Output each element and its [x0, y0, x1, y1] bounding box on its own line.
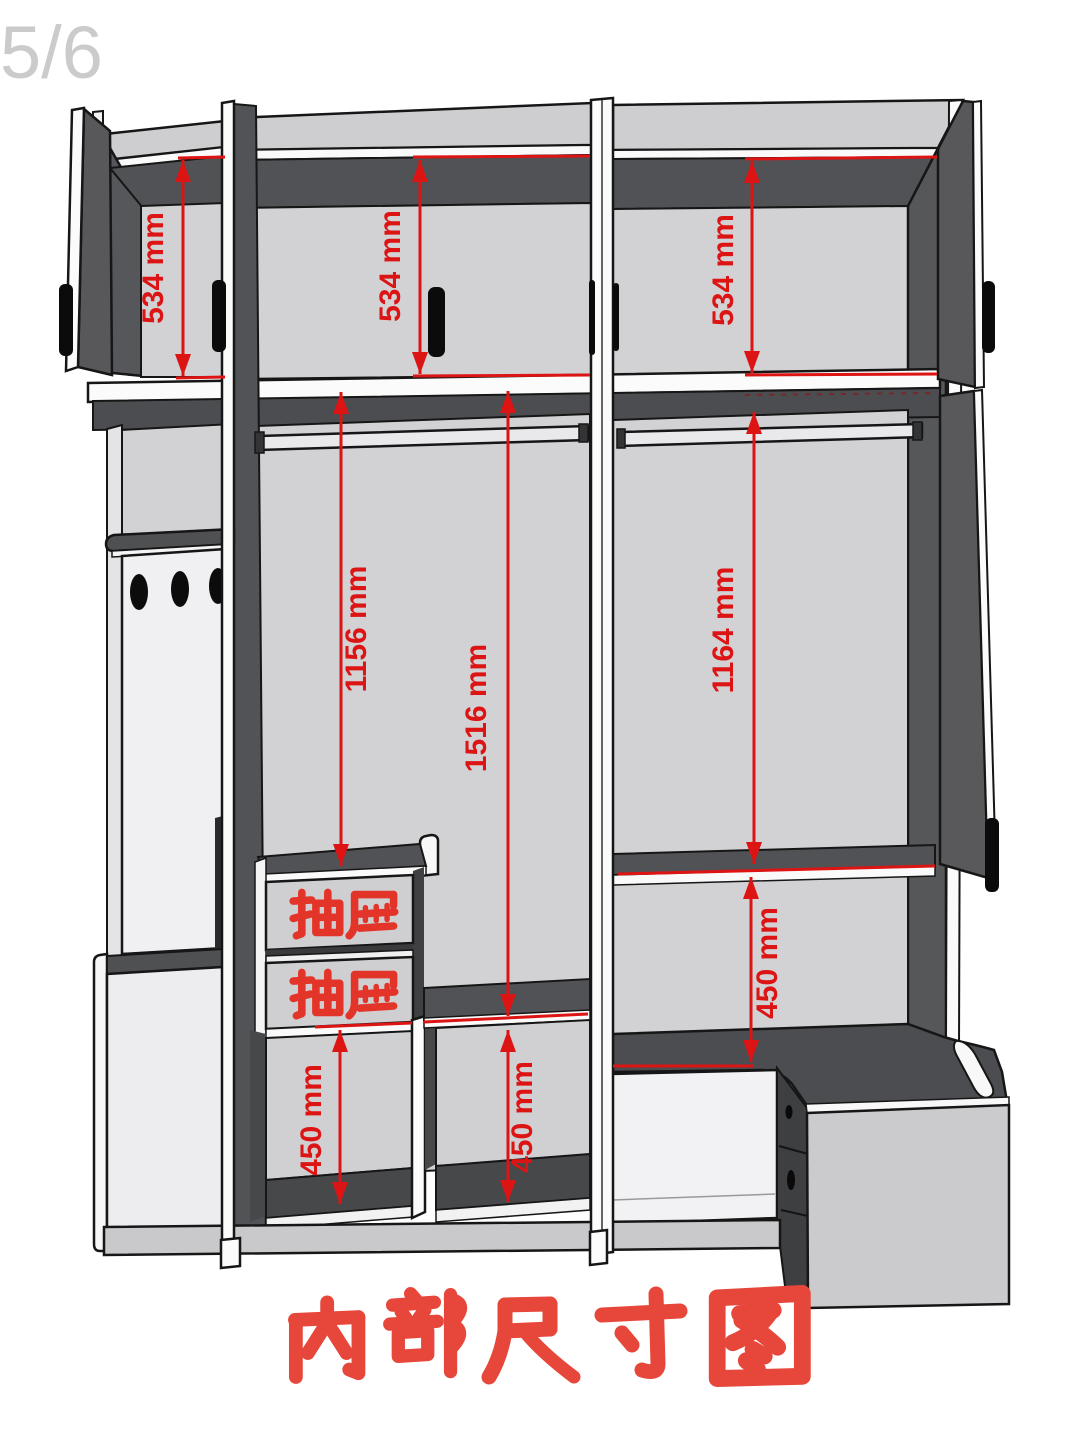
svg-text:450 mm: 450 mm [295, 1064, 328, 1176]
svg-text:450 mm: 450 mm [506, 1061, 539, 1173]
svg-text:5/6: 5/6 [0, 11, 103, 94]
svg-text:1164 mm: 1164 mm [707, 567, 740, 694]
svg-text:450 mm: 450 mm [751, 907, 784, 1019]
svg-text:1156 mm: 1156 mm [340, 566, 373, 693]
svg-text:534 mm: 534 mm [374, 210, 407, 322]
svg-text:1516 mm: 1516 mm [460, 644, 493, 772]
svg-text:534 mm: 534 mm [137, 212, 170, 324]
svg-text:534 mm: 534 mm [707, 214, 740, 326]
